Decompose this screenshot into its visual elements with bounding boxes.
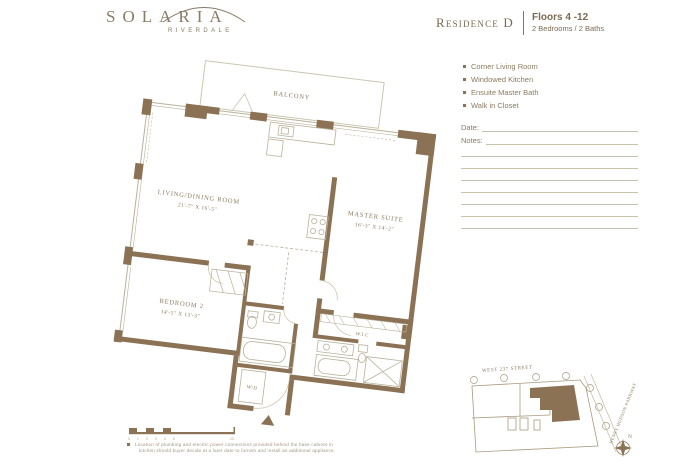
street-side-label: HENRY HUDSON PARKWAY: [608, 381, 637, 444]
site-key-plan: WEST 237 STREET HENRY HUDSON PARKWAY N: [460, 360, 640, 464]
entry-door-arc: [253, 376, 289, 412]
disclaimer-line2: kitchen should buyer decide at a later d…: [139, 448, 335, 454]
kitchen-fixtures: [249, 122, 339, 308]
header-divider: [523, 11, 524, 35]
bedroom2-label: BEDROOM 2: [159, 298, 204, 310]
brand-logo: SOLARIA RIVERDALE: [106, 7, 286, 34]
double-vanity-icon: [317, 341, 354, 356]
entry-arrow-icon: [259, 414, 276, 428]
blank-line: [461, 145, 638, 157]
fridge-icon: [266, 139, 283, 157]
blank-line: [461, 181, 638, 193]
compass-icon: N: [614, 434, 632, 457]
brand-name: SOLARIA: [106, 7, 286, 27]
blank-line: [461, 205, 638, 217]
notes-label: Notes:: [461, 136, 483, 145]
scale-tick: 5: [173, 437, 175, 441]
scale-tick: 2: [146, 437, 148, 441]
disclaimer-line1: Location of plumbing and electric power …: [135, 442, 335, 448]
blank-line: [461, 193, 638, 205]
compass-label: N: [628, 434, 632, 440]
washer-dryer: W/D: [238, 369, 266, 404]
date-writein-line: [482, 121, 638, 132]
bullet-icon: [463, 91, 466, 94]
notes-writein-line: [486, 134, 638, 145]
feature-list: Corner Living Room Windowed Kitchen Ensu…: [463, 62, 539, 114]
wd-label: W/D: [246, 385, 257, 391]
floors-label: Floors 4 -12: [532, 12, 604, 23]
residence-header: Residence D Floors 4 -12 2 Bedrooms / 2 …: [436, 11, 604, 35]
floorplan-brochure-page: { "colors":{"wall":"#8c7254","thin_line"…: [0, 0, 700, 466]
blank-line: [461, 217, 638, 229]
bullet-icon: [463, 104, 466, 107]
feature-label: Ensuite Master Bath: [471, 88, 539, 97]
notes-form: Date: Notes:: [461, 119, 638, 229]
balcony-label: BALCONY: [273, 90, 311, 101]
bedroom2-dims: 14'-5" X 13'-3": [160, 309, 200, 320]
feature-label: Windowed Kitchen: [471, 75, 533, 84]
scale-tick: 3: [155, 437, 157, 441]
bullet-icon: [463, 78, 466, 81]
bathtub-icon: [239, 337, 296, 367]
residence-name: Residence D: [436, 15, 514, 31]
toilet-icon: [248, 311, 259, 318]
blank-line: [461, 169, 638, 181]
scale-tick: 1: [137, 437, 139, 441]
master-suite-dims: 16'-3" X 14'-2": [354, 222, 394, 233]
toilet-icon: [358, 345, 368, 353]
wic-label: W.I.C: [355, 332, 369, 339]
living-room-dims: 21'-7" X 16'-5": [178, 202, 218, 213]
graphic-scale-bar: 0 1 2 3 4 5 10: [127, 423, 252, 443]
bullet-icon: [127, 443, 130, 446]
feature-item: Ensuite Master Bath: [463, 88, 539, 97]
unit-location-highlight: [530, 385, 580, 422]
feature-item: Walk in Closet: [463, 101, 539, 110]
bullet-icon: [463, 65, 466, 68]
kitchen-sink-icon: [278, 125, 294, 137]
window-walls: [119, 102, 436, 376]
brand-subname: RIVERDALE: [168, 28, 286, 34]
bedroom2-closet: [209, 269, 247, 295]
master-door-arc: [319, 280, 339, 300]
feature-label: Corner Living Room: [471, 62, 538, 71]
sink-icon: [263, 311, 280, 324]
date-label: Date:: [461, 123, 479, 132]
bath2-door-arc: [282, 308, 298, 324]
bedroom2-door-arc: [207, 266, 225, 284]
scale-tick: 4: [164, 437, 166, 441]
disclaimer-note: Location of plumbing and electric power …: [127, 442, 427, 453]
balcony: BALCONY: [200, 61, 384, 130]
feature-item: Corner Living Room: [463, 62, 539, 71]
feature-item: Windowed Kitchen: [463, 75, 539, 84]
bathtub-icon: [314, 354, 358, 380]
walls: [107, 98, 436, 429]
living-room-label: LIVING/DINING ROOM: [157, 189, 240, 206]
street-top-label: WEST 237 STREET: [482, 365, 533, 374]
floorplan-drawing: BALCONY: [103, 47, 451, 442]
scale-tick: 0: [128, 437, 130, 441]
feature-label: Walk in Closet: [471, 101, 519, 110]
blank-line: [461, 157, 638, 169]
scale-tick: 10: [230, 437, 234, 441]
bed-bath-label: 2 Bedrooms / 2 Baths: [532, 23, 604, 34]
parkway-road: [584, 374, 623, 452]
